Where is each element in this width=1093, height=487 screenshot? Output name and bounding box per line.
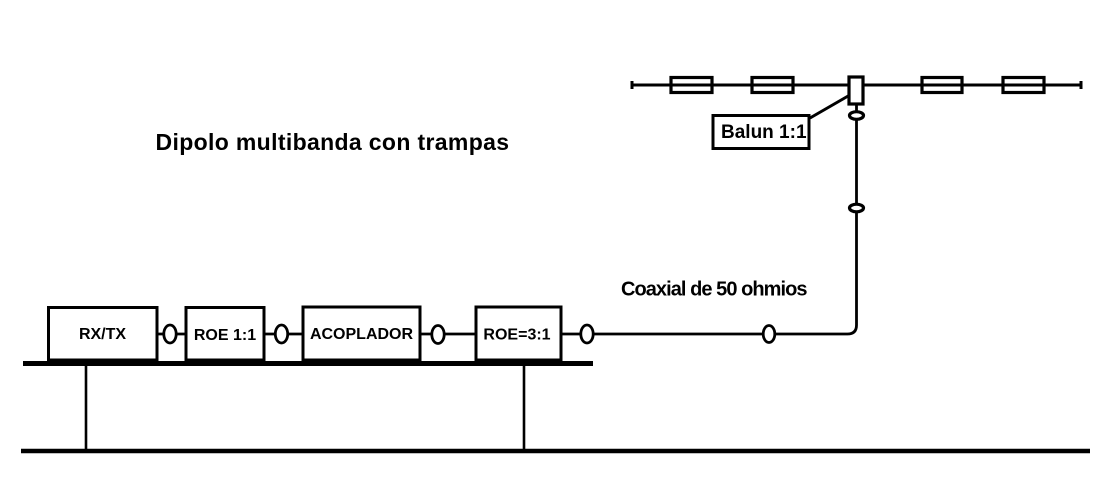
svg-text:Dipolo multibanda con trampas: Dipolo multibanda con trampas	[156, 129, 510, 155]
svg-text:ROE 1:1: ROE 1:1	[194, 327, 256, 344]
svg-text:Coaxial de 50 ohmios: Coaxial de 50 ohmios	[621, 279, 807, 301]
svg-text:ACOPLADOR: ACOPLADOR	[310, 326, 414, 343]
svg-text:Balun 1:1: Balun 1:1	[721, 122, 807, 143]
svg-text:RX/TX: RX/TX	[79, 326, 126, 343]
svg-text:ROE=3:1: ROE=3:1	[483, 327, 550, 344]
